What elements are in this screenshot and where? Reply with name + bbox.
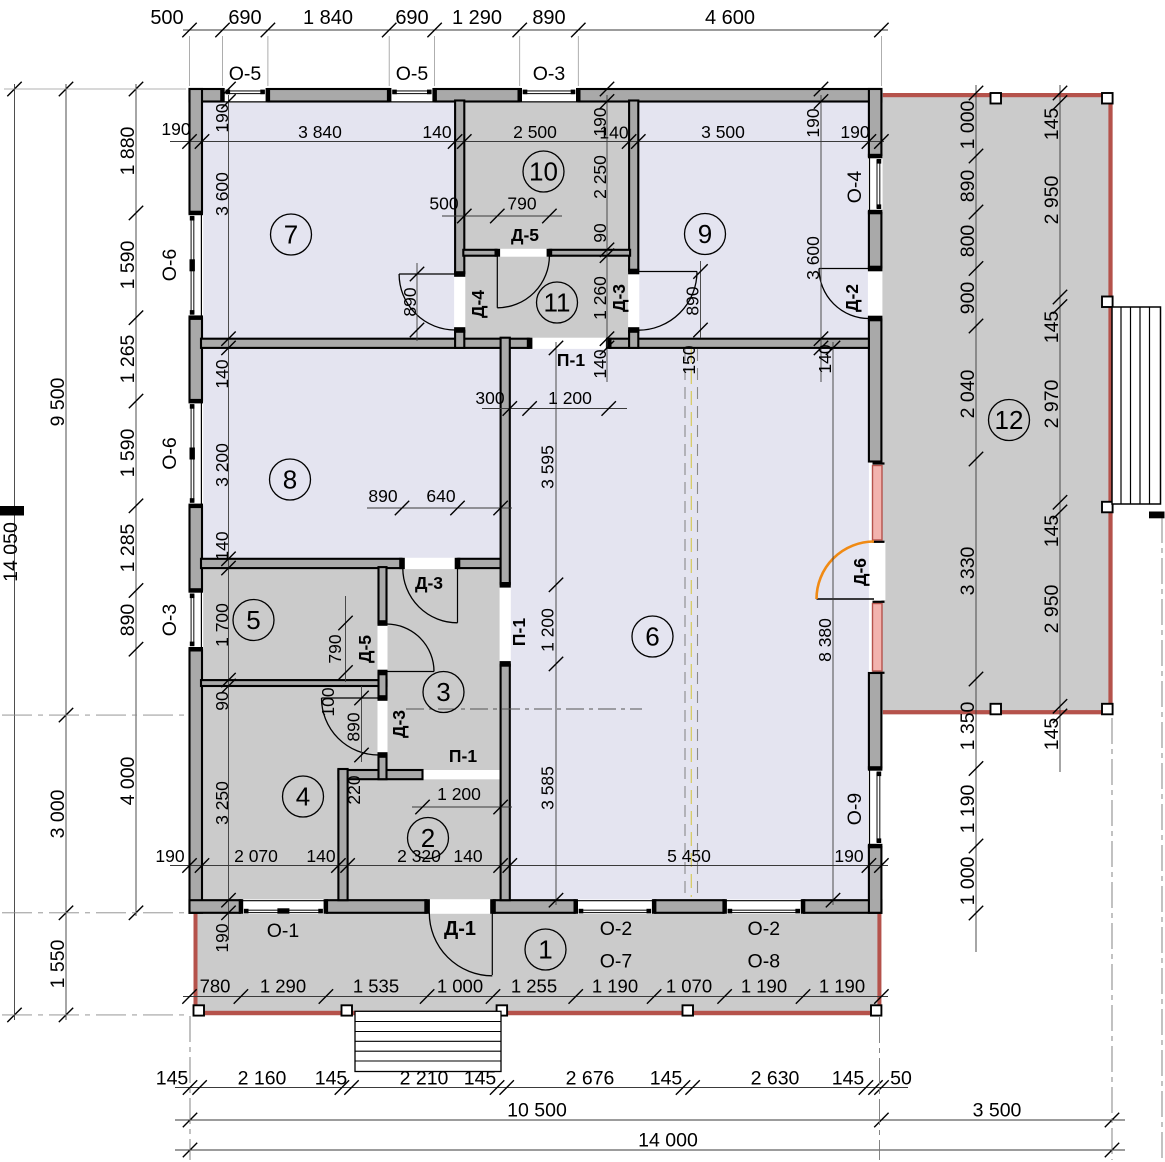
svg-text:4 000: 4 000 xyxy=(117,756,139,805)
svg-text:5 450: 5 450 xyxy=(667,846,711,866)
svg-text:1 260: 1 260 xyxy=(590,276,610,320)
svg-text:1: 1 xyxy=(538,935,552,965)
svg-text:2 630: 2 630 xyxy=(751,1068,800,1090)
svg-text:140: 140 xyxy=(306,846,335,866)
svg-text:О-7: О-7 xyxy=(600,951,633,973)
svg-text:2 950: 2 950 xyxy=(1041,175,1063,224)
svg-text:2 676: 2 676 xyxy=(566,1068,615,1090)
svg-text:1 190: 1 190 xyxy=(741,976,787,997)
svg-text:1 290: 1 290 xyxy=(452,7,502,29)
svg-text:1 880: 1 880 xyxy=(117,126,139,175)
svg-text:890: 890 xyxy=(532,7,565,29)
svg-text:2 040: 2 040 xyxy=(957,369,979,418)
svg-text:1 190: 1 190 xyxy=(819,976,865,997)
svg-text:4: 4 xyxy=(296,782,310,812)
svg-text:О-2: О-2 xyxy=(748,918,781,940)
svg-text:Д-1: Д-1 xyxy=(444,918,476,940)
svg-text:140: 140 xyxy=(212,359,232,388)
svg-text:3 595: 3 595 xyxy=(538,445,558,489)
svg-text:10 500: 10 500 xyxy=(507,1100,567,1122)
svg-text:П-1: П-1 xyxy=(509,618,529,646)
svg-text:890: 890 xyxy=(368,486,397,506)
svg-text:Д-6: Д-6 xyxy=(850,558,870,586)
svg-text:190: 190 xyxy=(161,119,190,139)
svg-text:5: 5 xyxy=(246,605,260,635)
svg-text:3: 3 xyxy=(436,677,450,707)
svg-text:12: 12 xyxy=(995,405,1024,435)
svg-text:780: 780 xyxy=(200,976,231,997)
svg-text:2 210: 2 210 xyxy=(400,1068,449,1090)
svg-text:14 050: 14 050 xyxy=(0,522,22,582)
svg-text:О-3: О-3 xyxy=(159,604,181,637)
svg-text:4 600: 4 600 xyxy=(705,7,755,29)
svg-text:900: 900 xyxy=(957,282,979,315)
svg-text:9: 9 xyxy=(698,219,712,249)
svg-text:1 190: 1 190 xyxy=(957,784,979,833)
svg-text:1 535: 1 535 xyxy=(353,976,399,997)
svg-text:3 250: 3 250 xyxy=(212,781,232,825)
svg-text:О-1: О-1 xyxy=(267,920,300,942)
svg-text:9 500: 9 500 xyxy=(47,377,69,426)
svg-text:2: 2 xyxy=(421,823,435,853)
svg-text:150: 150 xyxy=(679,345,699,374)
svg-text:145: 145 xyxy=(832,1068,865,1090)
svg-text:145: 145 xyxy=(315,1068,348,1090)
svg-text:6: 6 xyxy=(645,622,659,652)
svg-text:3 200: 3 200 xyxy=(212,443,232,487)
svg-text:3 500: 3 500 xyxy=(701,122,745,142)
svg-text:800: 800 xyxy=(957,225,979,258)
svg-text:145: 145 xyxy=(1041,718,1063,751)
svg-text:10: 10 xyxy=(529,157,558,187)
svg-text:1 700: 1 700 xyxy=(212,603,232,647)
svg-text:190: 190 xyxy=(590,107,610,136)
svg-text:7: 7 xyxy=(284,220,298,250)
svg-text:2 250: 2 250 xyxy=(590,155,610,199)
svg-text:690: 690 xyxy=(228,7,261,29)
svg-text:90: 90 xyxy=(590,223,610,243)
svg-text:Д-3: Д-3 xyxy=(389,710,409,738)
svg-text:О-9: О-9 xyxy=(844,793,866,826)
svg-text:140: 140 xyxy=(422,122,451,142)
svg-text:140: 140 xyxy=(590,349,610,378)
svg-text:Д-3: Д-3 xyxy=(415,573,443,593)
svg-text:8: 8 xyxy=(283,465,297,495)
svg-text:140: 140 xyxy=(212,531,232,560)
svg-text:Д-5: Д-5 xyxy=(511,225,539,245)
svg-text:690: 690 xyxy=(395,7,428,29)
svg-text:П-1: П-1 xyxy=(449,746,477,766)
svg-text:2 160: 2 160 xyxy=(238,1068,287,1090)
svg-text:50: 50 xyxy=(890,1068,912,1090)
svg-text:О-4: О-4 xyxy=(844,171,866,204)
svg-text:145: 145 xyxy=(1041,515,1063,548)
svg-text:190: 190 xyxy=(840,122,869,142)
svg-text:О-5: О-5 xyxy=(396,63,429,85)
svg-text:1 200: 1 200 xyxy=(538,608,558,652)
svg-text:100: 100 xyxy=(318,687,338,716)
svg-text:1 350: 1 350 xyxy=(957,701,979,750)
svg-text:О-6: О-6 xyxy=(159,249,181,282)
svg-text:890: 890 xyxy=(957,170,979,203)
svg-text:500: 500 xyxy=(429,194,458,214)
svg-text:190: 190 xyxy=(155,846,184,866)
svg-text:145: 145 xyxy=(156,1068,189,1090)
svg-text:14 000: 14 000 xyxy=(638,1130,698,1152)
svg-text:145: 145 xyxy=(464,1068,497,1090)
svg-text:890: 890 xyxy=(400,287,420,316)
svg-text:190: 190 xyxy=(834,846,863,866)
svg-text:790: 790 xyxy=(507,194,536,214)
svg-text:190: 190 xyxy=(803,108,823,137)
svg-text:140: 140 xyxy=(815,344,835,373)
svg-text:1 590: 1 590 xyxy=(117,428,139,477)
svg-text:2 500: 2 500 xyxy=(513,122,557,142)
svg-text:1 000: 1 000 xyxy=(437,976,483,997)
svg-text:3 330: 3 330 xyxy=(957,546,979,595)
svg-text:О-6: О-6 xyxy=(159,437,181,470)
svg-text:О-5: О-5 xyxy=(229,63,262,85)
svg-text:145: 145 xyxy=(650,1068,683,1090)
svg-text:2 950: 2 950 xyxy=(1041,584,1063,633)
svg-text:1 840: 1 840 xyxy=(303,7,353,29)
svg-text:3 585: 3 585 xyxy=(538,766,558,810)
svg-text:3 600: 3 600 xyxy=(212,172,232,216)
svg-text:3 600: 3 600 xyxy=(803,236,823,280)
svg-text:1 070: 1 070 xyxy=(666,976,712,997)
svg-text:140: 140 xyxy=(453,846,482,866)
svg-text:1 290: 1 290 xyxy=(260,976,306,997)
svg-text:3 840: 3 840 xyxy=(298,122,342,142)
svg-text:1 000: 1 000 xyxy=(957,100,979,149)
svg-text:Д-4: Д-4 xyxy=(468,290,488,318)
svg-text:190: 190 xyxy=(212,923,232,952)
svg-text:3 000: 3 000 xyxy=(47,789,69,838)
svg-text:1 550: 1 550 xyxy=(47,939,69,988)
svg-text:1 200: 1 200 xyxy=(437,784,481,804)
svg-text:2 070: 2 070 xyxy=(234,846,278,866)
svg-text:145: 145 xyxy=(1041,311,1063,344)
svg-text:190: 190 xyxy=(212,103,232,132)
svg-text:1 255: 1 255 xyxy=(511,976,557,997)
svg-text:Д-5: Д-5 xyxy=(355,635,375,663)
svg-text:1 000: 1 000 xyxy=(957,856,979,905)
svg-text:1 265: 1 265 xyxy=(117,334,139,383)
svg-text:Д-2: Д-2 xyxy=(842,284,862,312)
svg-text:300: 300 xyxy=(475,388,504,408)
svg-text:890: 890 xyxy=(683,286,703,315)
svg-text:3 500: 3 500 xyxy=(973,1100,1022,1122)
svg-text:О-3: О-3 xyxy=(533,63,566,85)
svg-text:890: 890 xyxy=(344,712,364,741)
svg-text:890: 890 xyxy=(117,604,139,637)
svg-text:145: 145 xyxy=(1041,108,1063,141)
svg-text:790: 790 xyxy=(325,634,345,663)
svg-text:1 190: 1 190 xyxy=(592,976,638,997)
svg-text:220: 220 xyxy=(344,775,364,804)
svg-text:1 200: 1 200 xyxy=(548,388,592,408)
svg-text:640: 640 xyxy=(426,486,455,506)
svg-text:О-8: О-8 xyxy=(748,951,781,973)
svg-text:11: 11 xyxy=(544,288,571,318)
svg-text:2 970: 2 970 xyxy=(1041,379,1063,428)
svg-text:П-1: П-1 xyxy=(557,350,585,370)
svg-text:Д-3: Д-3 xyxy=(609,284,629,312)
svg-text:О-2: О-2 xyxy=(600,918,633,940)
svg-text:1 590: 1 590 xyxy=(117,240,139,289)
svg-text:8 380: 8 380 xyxy=(815,618,835,662)
svg-text:1 285: 1 285 xyxy=(117,523,139,572)
svg-text:90: 90 xyxy=(212,691,232,711)
svg-text:500: 500 xyxy=(150,7,183,29)
